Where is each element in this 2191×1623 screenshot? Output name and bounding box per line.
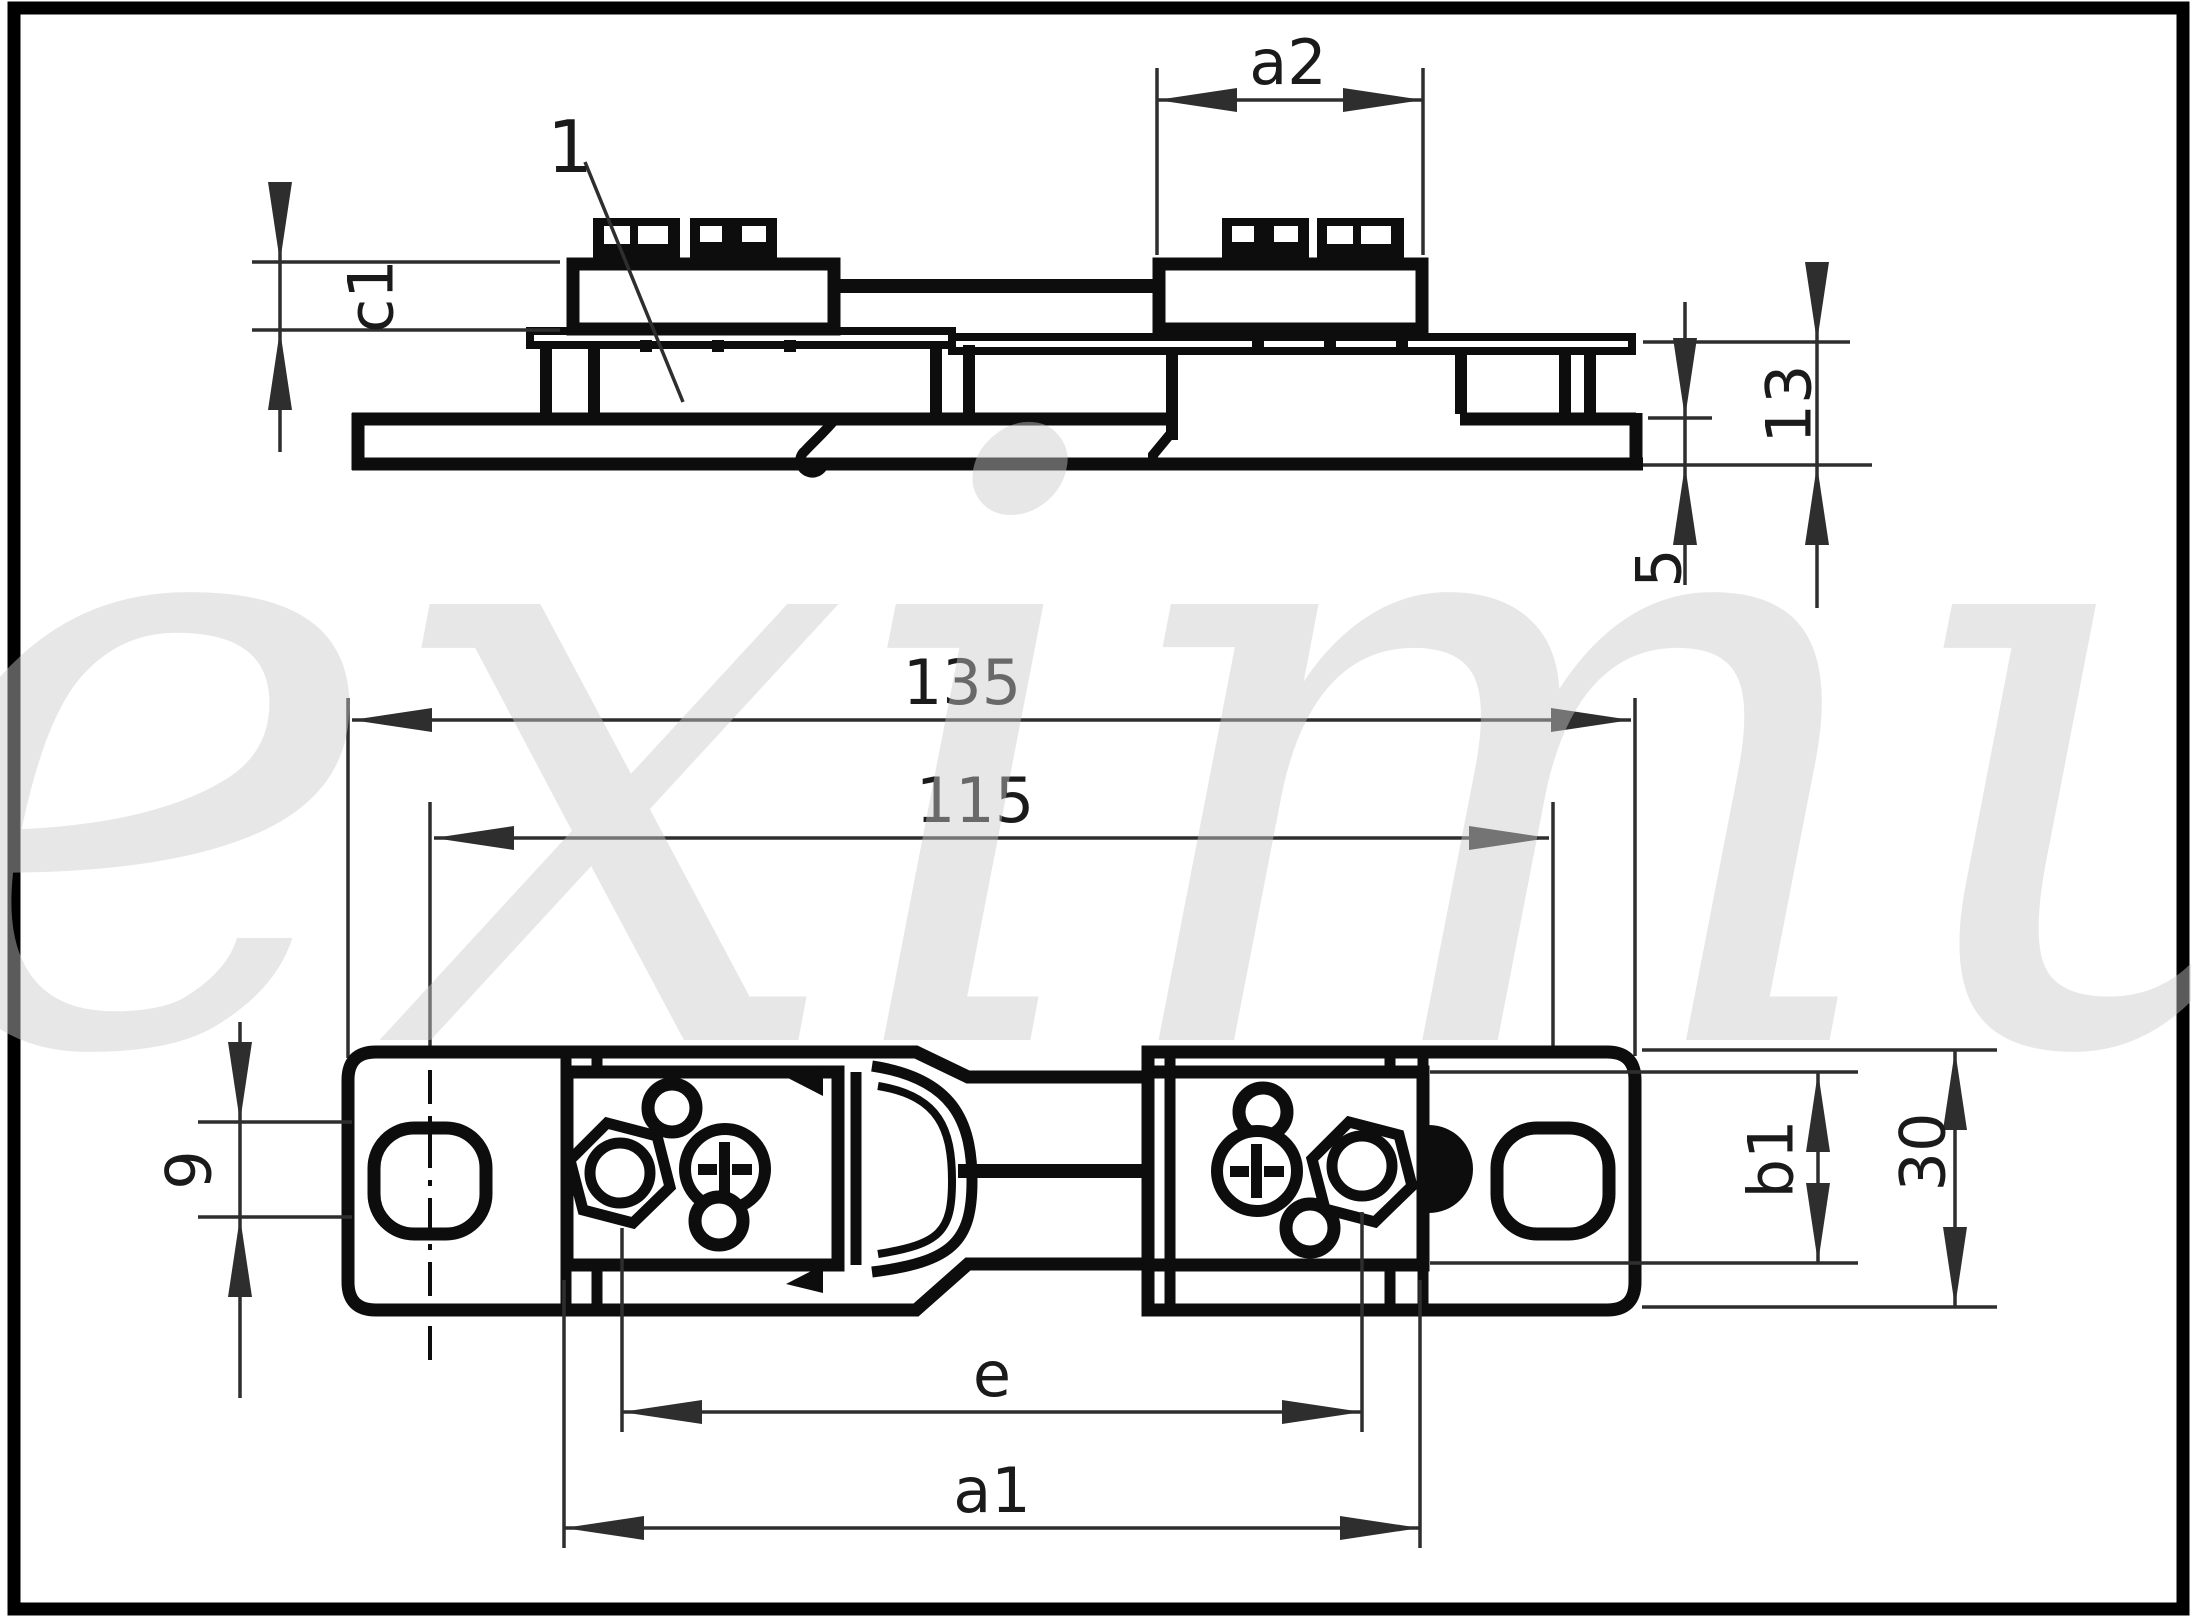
dim-c1-label: c1	[335, 259, 408, 333]
dim-a1-label: a1	[953, 1454, 1030, 1527]
right-clip-hook	[1153, 432, 1185, 463]
dim-5	[1648, 302, 1712, 585]
pedestal-walls	[546, 344, 1590, 440]
left-small-hole-bottom	[695, 1197, 743, 1245]
dim-30-label: 30	[1887, 1113, 1960, 1192]
left-small-hole-top	[648, 1084, 696, 1132]
terminal-screws-side	[593, 218, 1404, 263]
sheet-frame	[14, 8, 2183, 1609]
plan-view	[348, 1052, 1635, 1365]
right-terminal-block-side	[1159, 264, 1422, 329]
dim-e-label: e	[973, 1338, 1011, 1411]
dim-9-label: 9	[153, 1150, 226, 1189]
left-terminal-block-side	[573, 264, 834, 329]
right-small-hole-bottom	[1286, 1204, 1334, 1252]
fuse-strip	[958, 1164, 1148, 1178]
side-view	[352, 162, 1643, 473]
drawing-sheet: 1	[0, 0, 2191, 1623]
dim-13-label: 13	[1753, 365, 1826, 444]
right-mounting-hole	[1497, 1128, 1609, 1234]
technical-drawing: 1	[0, 0, 2191, 1623]
dimensions-side	[252, 68, 1872, 1140]
dim-9	[198, 1022, 352, 1398]
dim-5-label: 5	[1623, 548, 1696, 587]
dim-135-label: 135	[903, 646, 1021, 719]
dim-b1-label: b1	[1735, 1120, 1808, 1199]
dim-a2-label: a2	[1249, 26, 1326, 99]
part-ref-label: 1	[547, 105, 593, 189]
dim-115-label: 115	[916, 764, 1034, 837]
base-top-plate	[952, 337, 1632, 351]
dim-135	[348, 698, 1635, 1058]
fuse-link-bar	[840, 279, 1153, 293]
